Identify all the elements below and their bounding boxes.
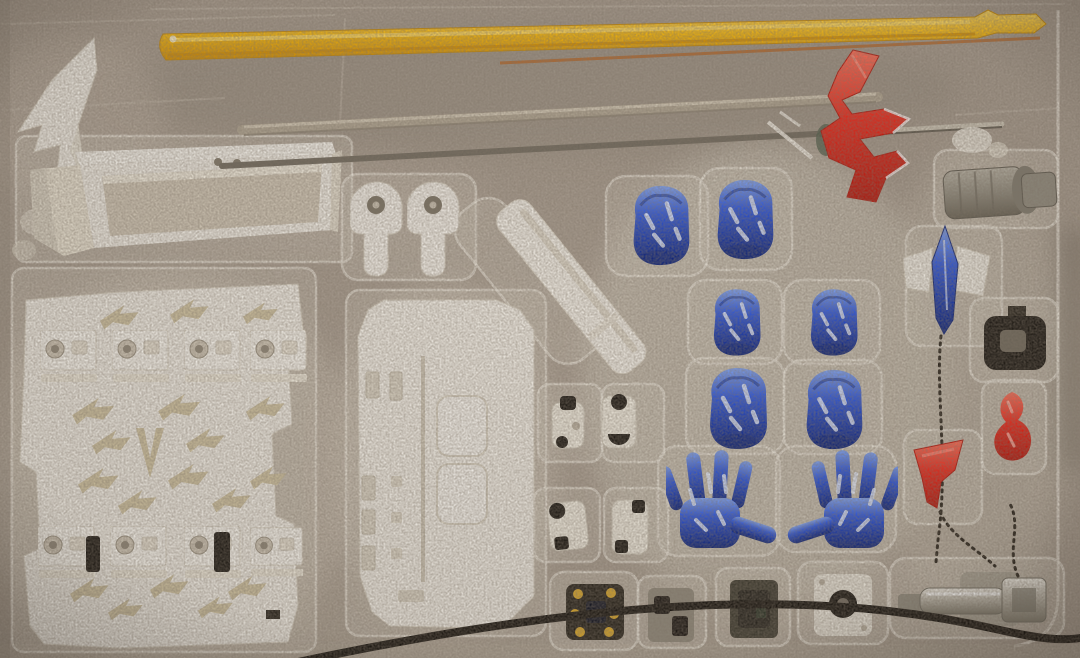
blister-tray-photo xyxy=(0,0,1080,658)
vignette-overlay xyxy=(0,0,1080,658)
